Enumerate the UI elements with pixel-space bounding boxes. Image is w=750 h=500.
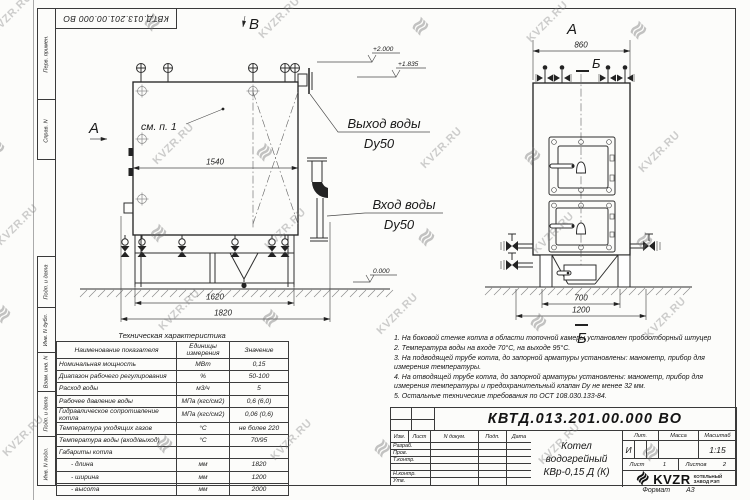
col-header: Подп. bbox=[479, 431, 507, 442]
spec-header-units: Единицы измерения bbox=[177, 342, 230, 359]
stamp-label: Подп. и дата bbox=[44, 396, 50, 431]
level-plus1835: +1.835 bbox=[357, 61, 426, 77]
spec-cell: Рабочее давление воды bbox=[57, 395, 177, 407]
front-view: В А см. п. 1 bbox=[55, 10, 455, 335]
sheet-label: Лист bbox=[623, 459, 651, 470]
sig-label: Т.контр. bbox=[391, 457, 431, 463]
svg-text:+1.835: +1.835 bbox=[398, 61, 419, 68]
svg-text:860: 860 bbox=[574, 41, 588, 50]
svg-text:1540: 1540 bbox=[206, 158, 224, 167]
side-valve-right bbox=[630, 234, 660, 251]
watermark-logo: ≋ bbox=[0, 299, 18, 329]
view-arrow-b bbox=[243, 16, 245, 27]
side-view-label: А bbox=[566, 21, 577, 38]
spec-row: Габариты котла bbox=[57, 447, 289, 459]
side-support bbox=[540, 255, 630, 287]
lit-header: Лит. bbox=[623, 431, 659, 440]
product-name-line2: КВр-0,15 Д (К) bbox=[543, 466, 609, 479]
sig-label: Утв. bbox=[391, 478, 431, 485]
spec-cell: 50-100 bbox=[230, 371, 289, 383]
side-roof-valves bbox=[536, 65, 634, 83]
inlet-label: Вход воды Dy50 bbox=[327, 197, 443, 232]
sig-label: Разраб. bbox=[391, 443, 431, 449]
stamp-cell: Инв. N дубл. bbox=[38, 308, 55, 353]
title-block: КВТД.013.201.00.000 ВО Изм. Лист N докум… bbox=[390, 407, 737, 486]
scale-value: 1:15 bbox=[699, 441, 736, 458]
spec-row: Расход водым3/ч5 bbox=[57, 383, 289, 395]
spec-cell: мм bbox=[177, 471, 230, 483]
spec-cell: 0,06 (0,6) bbox=[230, 407, 289, 422]
stamp-label: Перв. примен. bbox=[44, 35, 50, 72]
svg-text:700: 700 bbox=[574, 294, 588, 303]
sheets-label: Листов bbox=[679, 459, 713, 470]
section-mark-top: Б bbox=[576, 56, 601, 71]
svg-text:Вход воды: Вход воды bbox=[372, 197, 436, 212]
svg-text:Выход воды: Выход воды bbox=[347, 116, 421, 131]
spec-cell: 0,15 bbox=[230, 359, 289, 371]
outlet-label: Выход воды Dy50 bbox=[310, 94, 430, 151]
spec-header-row: Наименование показателя Единицы измерени… bbox=[57, 342, 289, 359]
svg-text:Dy50: Dy50 bbox=[384, 217, 415, 232]
spec-cell: 5 bbox=[230, 383, 289, 395]
spec-cell: Гидравлическое сопротивление котла bbox=[57, 407, 177, 422]
bottom-valves bbox=[121, 235, 290, 257]
mass-value bbox=[659, 441, 699, 458]
spec-cell: не более 220 bbox=[230, 422, 289, 434]
view-label-b: В bbox=[249, 16, 259, 33]
spec-cell: Номинальная мощность bbox=[57, 359, 177, 371]
change-table bbox=[391, 408, 434, 431]
watermark-text: KVZR.RU bbox=[0, 202, 41, 248]
ground-front bbox=[80, 289, 393, 297]
outlet-flange bbox=[298, 68, 312, 94]
logo-sub-line2: ЗАВОД РЭП bbox=[694, 479, 723, 484]
svg-text:1820: 1820 bbox=[214, 309, 232, 318]
spec-row: - длинамм1820 bbox=[57, 459, 289, 471]
leader-dot bbox=[222, 108, 225, 111]
dim-1540: 1540 bbox=[133, 158, 298, 169]
spec-cell: - ширина bbox=[57, 471, 177, 483]
watermark-logo: ≋ bbox=[0, 133, 12, 163]
svg-text:0.000: 0.000 bbox=[373, 268, 390, 275]
spec-cell: % bbox=[177, 371, 230, 383]
svg-text:Dy50: Dy50 bbox=[364, 136, 395, 151]
spec-row: Температура воды (вход/выход)°С70/95 bbox=[57, 434, 289, 446]
spec-header-value: Значение bbox=[230, 342, 289, 359]
spec-cell: Диапазон рабочего регулирования bbox=[57, 371, 177, 383]
spec-header-name: Наименование показателя bbox=[57, 342, 177, 359]
upper-door bbox=[549, 137, 615, 195]
notes-block: 1. На боковой стенке котла в области топ… bbox=[394, 334, 735, 402]
note-line: 5. Остальные технические требования по О… bbox=[394, 392, 735, 401]
spec-cell: 1820 bbox=[230, 459, 289, 471]
spec-cell: Температура воды (вход/выход) bbox=[57, 434, 177, 446]
spec-row: Гидравлическое сопротивление котлаМПа (к… bbox=[57, 407, 289, 422]
stamp-label: Взам. инв. N bbox=[44, 356, 50, 389]
sig-label: Пров. bbox=[391, 450, 431, 456]
spec-row: Диапазон рабочего регулирования%50-100 bbox=[57, 371, 289, 383]
spec-cell: м3/ч bbox=[177, 383, 230, 395]
spec-row: - высотамм2000 bbox=[57, 483, 289, 495]
spec-row: - ширинамм1200 bbox=[57, 471, 289, 483]
stamp-cell: Перв. примен. bbox=[38, 9, 55, 100]
stamp-label: Подп. и дата bbox=[44, 264, 50, 299]
spec-cell: Габариты котла bbox=[57, 447, 177, 459]
see-note-ref: см. п. 1 bbox=[141, 121, 177, 133]
stamp-label: Справ. N bbox=[44, 119, 50, 142]
spec-row: Номинальная мощностьМВт0,15 bbox=[57, 359, 289, 371]
spec-cell: 70/95 bbox=[230, 434, 289, 446]
paper-edge-line bbox=[33, 0, 34, 500]
svg-text:+2.000: +2.000 bbox=[373, 46, 394, 53]
company-logo: ≋ KVZR КОТЕЛЬНЫЙ ЗАВОД РЭП bbox=[623, 471, 736, 487]
col-header: Изм. bbox=[391, 431, 409, 442]
kvzr-logo-text: KVZR bbox=[653, 472, 690, 487]
svg-text:1620: 1620 bbox=[206, 293, 224, 302]
inlet-pipe bbox=[307, 158, 328, 241]
spec-table-title: Техническая характеристика bbox=[72, 331, 272, 340]
spec-cell: МВт bbox=[177, 359, 230, 371]
mass-header: Масса bbox=[659, 431, 699, 440]
level-zero: 0.000 bbox=[353, 268, 397, 282]
sheets-value: 2 bbox=[713, 459, 736, 470]
stamp-cell: Взам. инв. N bbox=[38, 353, 55, 392]
spec-row: Температура уходящих газов°Сне более 220 bbox=[57, 422, 289, 434]
spec-row: Рабочее давление водыМПа (кгс/см2)0,6 (6… bbox=[57, 395, 289, 407]
side-valves-left bbox=[501, 234, 533, 270]
product-name: Котел водогрейный КВр-0,15 Д (К) bbox=[531, 431, 623, 487]
lit-value: И bbox=[623, 441, 635, 458]
stamp-label: Инв. N дубл. bbox=[44, 314, 50, 346]
product-name-line1: Котел водогрейный bbox=[531, 440, 622, 466]
kvzr-logo-subtext: КОТЕЛЬНЫЙ ЗАВОД РЭП bbox=[694, 474, 723, 484]
spec-table: Наименование показателя Единицы измерени… bbox=[56, 341, 289, 496]
title-block-col-headers: Изм. Лист N докум. Подп. Дата bbox=[391, 431, 531, 443]
spec-cell: Температура уходящих газов bbox=[57, 422, 177, 434]
dim-860: 860 bbox=[533, 40, 630, 80]
roof-valves bbox=[137, 64, 300, 83]
stamp-cell: Инв. N подл. bbox=[38, 437, 55, 491]
stamp-cell: Подп. и дата bbox=[38, 257, 55, 308]
sig-label: Н.контр. bbox=[391, 471, 431, 477]
spec-cell: 1200 bbox=[230, 471, 289, 483]
spec-cell: МПа (кгс/см2) bbox=[177, 395, 230, 407]
spec-cell: 2000 bbox=[230, 483, 289, 495]
level-plus2000: +2.000 bbox=[317, 46, 400, 62]
watermark-text: KVZR.RU bbox=[0, 0, 35, 37]
spec-cell: - высота bbox=[57, 483, 177, 495]
flue-duct-lines bbox=[253, 88, 298, 228]
spec-cell: Расход воды bbox=[57, 383, 177, 395]
lifting-eyes bbox=[136, 85, 260, 206]
scale-header: Масштаб bbox=[699, 431, 736, 440]
stamp-column-top: Перв. примен. Справ. N bbox=[37, 8, 56, 160]
spec-cell: мм bbox=[177, 483, 230, 495]
spec-cell: мм bbox=[177, 459, 230, 471]
spec-cell bbox=[230, 447, 289, 459]
drawing-sheet: Перв. примен. Справ. N Подп. и дата Инв.… bbox=[0, 0, 750, 500]
note-line: 1. На боковой стенке котла в области топ… bbox=[394, 334, 735, 343]
note-line: 3. На подводящей трубе котла, до запорно… bbox=[394, 354, 735, 373]
stamp-cell: Справ. N bbox=[38, 100, 55, 162]
col-header: Дата bbox=[507, 431, 531, 442]
sheet-value: 1 bbox=[651, 459, 679, 470]
stamp-column-bottom: Подп. и дата Инв. N дубл. Взам. инв. N П… bbox=[37, 256, 56, 486]
stamp-cell: Подп. и дата bbox=[38, 392, 55, 437]
spec-table-block: Техническая характеристика Наименование … bbox=[56, 331, 288, 496]
support-frame bbox=[135, 235, 294, 288]
col-header: Лист bbox=[409, 431, 431, 442]
note-line: 2. Температура воды на входе 70°С, на вы… bbox=[394, 344, 735, 353]
spec-cell: °С bbox=[177, 434, 230, 446]
sig-label bbox=[391, 464, 431, 470]
lower-door bbox=[549, 201, 615, 252]
spec-cell: - длина bbox=[57, 459, 177, 471]
signature-rows: Разраб. Пров. Т.контр. Н.контр. Утв. bbox=[391, 443, 531, 485]
format-note: Формат А3 bbox=[600, 487, 737, 494]
note-line: 4. На отводящей трубе котла, до запорной… bbox=[394, 373, 735, 392]
format-label: Формат bbox=[642, 487, 670, 494]
svg-text:1200: 1200 bbox=[572, 306, 590, 315]
title-block-code: КВТД.013.201.00.000 ВО bbox=[434, 408, 735, 431]
spec-cell: °С bbox=[177, 422, 230, 434]
spec-cell bbox=[177, 447, 230, 459]
spec-cell: 0,6 (6,0) bbox=[230, 395, 289, 407]
spec-cell: МПа (кгс/см2) bbox=[177, 407, 230, 422]
format-value: А3 bbox=[686, 487, 695, 494]
title-block-right: Лит. Масса Масштаб И 1:15 Лист 1 Листов … bbox=[623, 431, 736, 487]
col-header: N докум. bbox=[431, 431, 479, 442]
view-label-a: А bbox=[88, 120, 99, 137]
side-view: А 860 Б bbox=[480, 18, 740, 348]
stamp-label: Инв. N подл. bbox=[44, 448, 50, 481]
svg-text:Б: Б bbox=[592, 56, 601, 71]
